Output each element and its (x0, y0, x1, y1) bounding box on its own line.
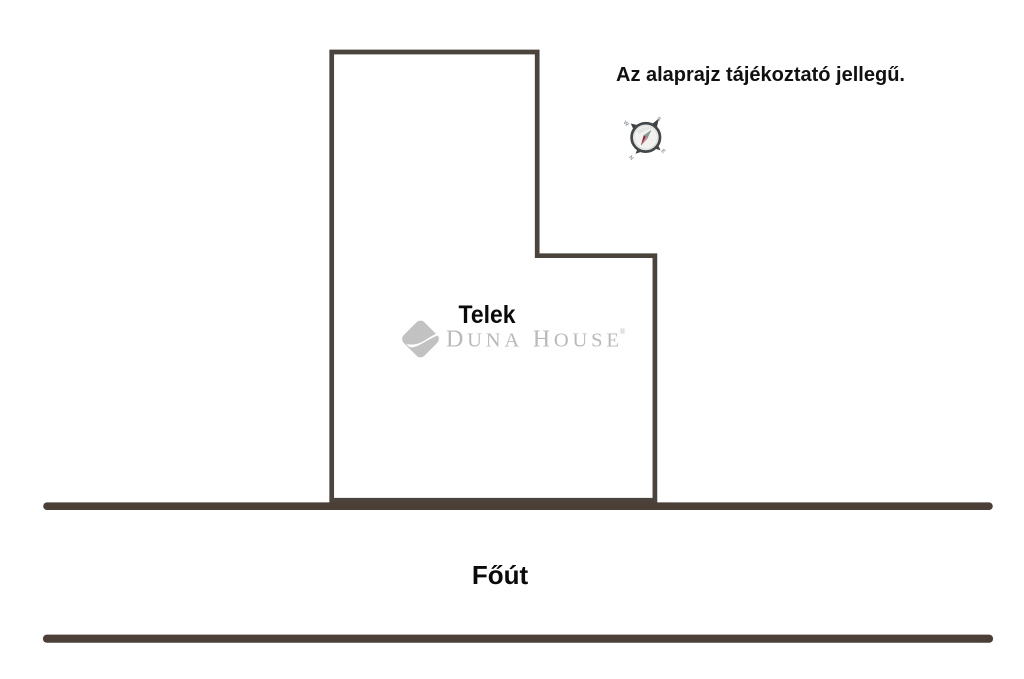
svg-text:®: ® (620, 327, 626, 336)
svg-text:Az alaprajz tájékoztató jelleg: Az alaprajz tájékoztató jellegű. (616, 64, 905, 86)
svg-text:Főút: Főút (472, 560, 529, 590)
svg-text:DUNA HOUSE: DUNA HOUSE (446, 326, 623, 352)
svg-text:E: E (659, 148, 666, 155)
svg-text:Telek: Telek (459, 301, 516, 329)
svg-text:W: W (622, 120, 630, 128)
svg-text:N: N (627, 155, 634, 162)
